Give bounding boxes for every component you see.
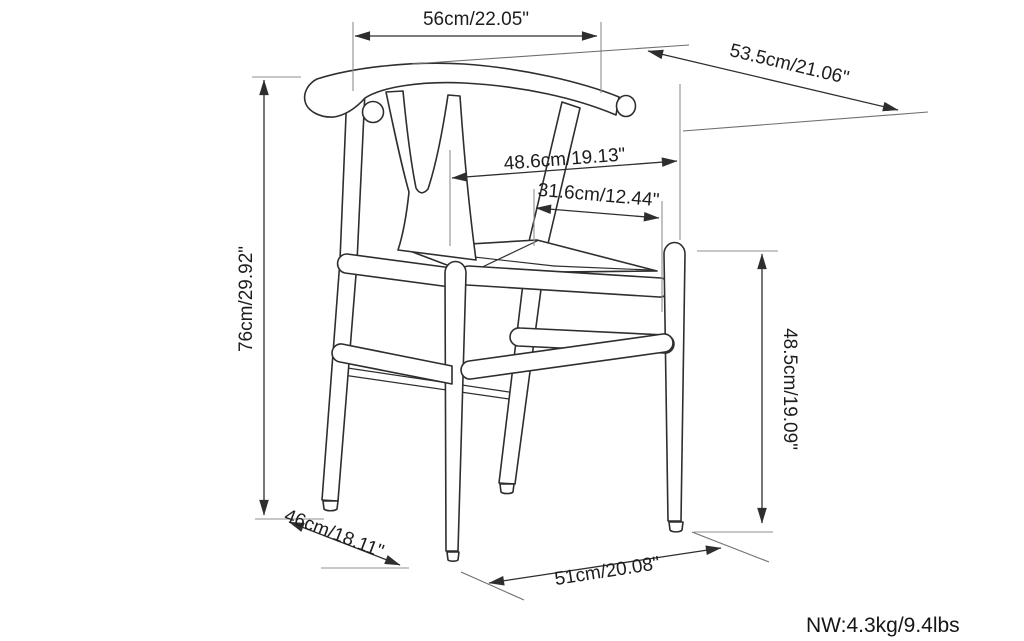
dimension-seat-front-width: 51cm/20.08" (461, 532, 769, 600)
dimension-label-base-side-depth: 46cm/18.11" (281, 505, 386, 562)
chair-dimension-diagram: 56cm/22.05" 53.5cm/21.06" 48.6cm/19.13" … (0, 0, 1024, 641)
dimension-label-top-back-width: 56cm/22.05" (423, 9, 529, 30)
diagram-svg: 56cm/22.05" 53.5cm/21.06" 48.6cm/19.13" … (0, 0, 1024, 641)
dimension-overall-height: 76cm/29.92" (236, 77, 324, 519)
chair-drawing (305, 63, 685, 561)
chair-front-right-leg (664, 243, 685, 532)
dimension-arm-height: 48.5cm/19.09" (694, 251, 800, 532)
dimension-label-backrest-inner-width: 48.6cm/19.13" (503, 144, 626, 174)
chair-y-splat (386, 91, 476, 260)
net-weight-label: NW:4.3kg/9.4lbs (806, 614, 960, 637)
dimension-label-diagonal-overall-depth: 53.5cm/21.06" (728, 40, 851, 89)
dimension-base-side-depth: 46cm/18.11" (281, 505, 409, 568)
chair-rail-hook-cap (363, 102, 384, 123)
dimension-label-seat-front-width: 51cm/20.08" (553, 553, 661, 590)
dimension-label-arm-height: 48.5cm/19.09" (779, 328, 800, 450)
chair-stretchers (332, 328, 674, 384)
dimension-label-overall-height: 76cm/29.92" (236, 246, 257, 352)
chair-front-left-leg (445, 262, 466, 562)
chair-rail-right-cap (617, 96, 636, 117)
chair-left-stretcher (332, 344, 452, 384)
chair-rear-left-leg (322, 91, 365, 511)
